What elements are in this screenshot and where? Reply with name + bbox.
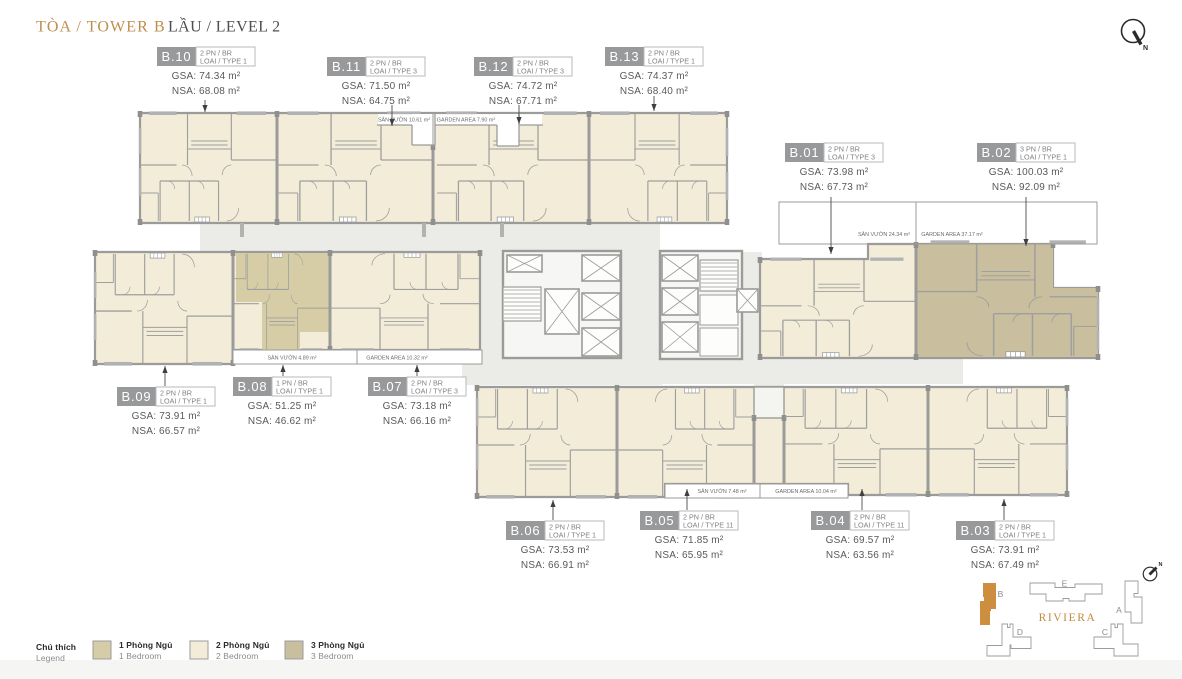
svg-text:LOAI / TYPE 1: LOAI / TYPE 1 bbox=[200, 57, 247, 66]
svg-text:LOAI / TYPE 1: LOAI / TYPE 1 bbox=[648, 57, 695, 66]
svg-text:NSA: 67.71 m²: NSA: 67.71 m² bbox=[489, 96, 558, 107]
svg-text:1 Phòng Ngủ: 1 Phòng Ngủ bbox=[119, 640, 173, 650]
svg-text:SÂN VƯỜN 10.61 m²: SÂN VƯỜN 10.61 m² bbox=[378, 117, 430, 124]
svg-text:NSA: 68.40 m²: NSA: 68.40 m² bbox=[620, 86, 689, 97]
svg-text:GSA: 51.25 m²: GSA: 51.25 m² bbox=[248, 401, 317, 412]
svg-text:GARDEN AREA 7.90 m²: GARDEN AREA 7.90 m² bbox=[437, 118, 496, 124]
svg-text:GSA: 71.85 m²: GSA: 71.85 m² bbox=[655, 535, 724, 546]
svg-text:LOAI / TYPE 1: LOAI / TYPE 1 bbox=[999, 531, 1046, 540]
svg-text:B.02: B.02 bbox=[982, 145, 1012, 160]
svg-text:NSA: 63.56 m²: NSA: 63.56 m² bbox=[826, 550, 895, 561]
svg-text:GARDEN AREA 37.17 m²: GARDEN AREA 37.17 m² bbox=[921, 232, 983, 238]
svg-text:NSA: 64.75 m²: NSA: 64.75 m² bbox=[342, 96, 411, 107]
svg-text:B.11: B.11 bbox=[332, 59, 361, 74]
svg-text:TÒA / TOWER B: TÒA / TOWER B bbox=[36, 17, 166, 36]
svg-text:LOAI / TYPE 1: LOAI / TYPE 1 bbox=[1020, 153, 1067, 162]
svg-text:NSA: 65.95 m²: NSA: 65.95 m² bbox=[655, 550, 724, 561]
svg-text:N: N bbox=[1159, 562, 1163, 568]
svg-text:Legend: Legend bbox=[36, 653, 65, 663]
svg-text:B.07: B.07 bbox=[373, 379, 403, 394]
svg-text:LOAI / TYPE 3: LOAI / TYPE 3 bbox=[828, 153, 875, 162]
svg-text:NSA: 92.09 m²: NSA: 92.09 m² bbox=[992, 182, 1061, 193]
svg-text:GSA: 73.53 m²: GSA: 73.53 m² bbox=[521, 545, 590, 556]
svg-text:3 Phòng Ngủ: 3 Phòng Ngủ bbox=[311, 640, 365, 650]
svg-text:N: N bbox=[1143, 45, 1148, 52]
svg-text:2 Bedroom: 2 Bedroom bbox=[216, 651, 258, 661]
svg-text:A: A bbox=[1116, 605, 1122, 615]
svg-text:LOAI / TYPE 3: LOAI / TYPE 3 bbox=[517, 67, 564, 76]
svg-text:1 Bedroom: 1 Bedroom bbox=[119, 651, 161, 661]
svg-text:NSA: 66.91 m²: NSA: 66.91 m² bbox=[521, 560, 590, 571]
svg-text:GSA: 73.18 m²: GSA: 73.18 m² bbox=[383, 401, 452, 412]
svg-text:GSA: 74.34 m²: GSA: 74.34 m² bbox=[172, 71, 241, 82]
svg-text:NSA: 46.62 m²: NSA: 46.62 m² bbox=[248, 416, 317, 427]
svg-text:LOAI / TYPE 3: LOAI / TYPE 3 bbox=[370, 67, 417, 76]
svg-text:LOAI / TYPE 1: LOAI / TYPE 1 bbox=[549, 531, 596, 540]
svg-text:RIVIERA: RIVIERA bbox=[1039, 612, 1097, 624]
svg-text:E: E bbox=[1062, 579, 1068, 589]
svg-text:GSA: 100.03 m²: GSA: 100.03 m² bbox=[989, 167, 1064, 178]
svg-text:LOAI / TYPE 3: LOAI / TYPE 3 bbox=[411, 387, 458, 396]
svg-text:LOAI / TYPE 11: LOAI / TYPE 11 bbox=[854, 521, 904, 530]
svg-text:B.13: B.13 bbox=[610, 49, 640, 64]
svg-text:D: D bbox=[1017, 627, 1023, 637]
svg-text:GSA: 71.50 m²: GSA: 71.50 m² bbox=[342, 81, 411, 92]
svg-text:Chú thích: Chú thích bbox=[36, 642, 76, 652]
svg-text:3 Bedroom: 3 Bedroom bbox=[311, 651, 353, 661]
svg-text:SÂN VƯỜN 7.48 m²: SÂN VƯỜN 7.48 m² bbox=[697, 488, 746, 495]
svg-text:GARDEN AREA 10.04 m²: GARDEN AREA 10.04 m² bbox=[775, 489, 837, 495]
svg-text:B.05: B.05 bbox=[645, 513, 675, 528]
svg-text:LOAI / TYPE 1: LOAI / TYPE 1 bbox=[276, 387, 323, 396]
svg-text:GSA: 73.98 m²: GSA: 73.98 m² bbox=[800, 167, 869, 178]
svg-text:NSA: 67.49 m²: NSA: 67.49 m² bbox=[971, 560, 1040, 571]
svg-text:B.10: B.10 bbox=[162, 49, 192, 64]
svg-text:LẦU / LEVEL 2: LẦU / LEVEL 2 bbox=[168, 17, 281, 36]
svg-text:LOAI / TYPE 1: LOAI / TYPE 1 bbox=[160, 397, 207, 406]
svg-text:B.03: B.03 bbox=[961, 523, 991, 538]
svg-text:GSA: 74.37 m²: GSA: 74.37 m² bbox=[620, 71, 689, 82]
svg-text:NSA: 66.57 m²: NSA: 66.57 m² bbox=[132, 426, 201, 437]
svg-text:GARDEN AREA 10.32 m²: GARDEN AREA 10.32 m² bbox=[366, 356, 428, 362]
svg-text:LOAI / TYPE 11: LOAI / TYPE 11 bbox=[683, 521, 733, 530]
svg-text:2 Phòng Ngủ: 2 Phòng Ngủ bbox=[216, 640, 270, 650]
svg-text:GSA: 73.91 m²: GSA: 73.91 m² bbox=[971, 545, 1040, 556]
svg-text:SÂN VƯỜN 4.89 m²: SÂN VƯỜN 4.89 m² bbox=[267, 355, 316, 362]
svg-text:B.08: B.08 bbox=[238, 379, 268, 394]
svg-text:NSA: 66.16 m²: NSA: 66.16 m² bbox=[383, 416, 452, 427]
svg-text:C: C bbox=[1102, 627, 1108, 637]
svg-text:GSA: 69.57 m²: GSA: 69.57 m² bbox=[826, 535, 895, 546]
svg-text:NSA: 68.08 m²: NSA: 68.08 m² bbox=[172, 86, 241, 97]
svg-text:GSA: 74.72 m²: GSA: 74.72 m² bbox=[489, 81, 558, 92]
svg-text:B.06: B.06 bbox=[511, 523, 541, 538]
svg-text:SÂN VƯỜN 24.34 m²: SÂN VƯỜN 24.34 m² bbox=[858, 231, 910, 238]
svg-text:B.04: B.04 bbox=[816, 513, 846, 528]
svg-text:B.09: B.09 bbox=[122, 389, 152, 404]
svg-text:NSA: 67.73 m²: NSA: 67.73 m² bbox=[800, 182, 869, 193]
svg-text:B.01: B.01 bbox=[790, 145, 820, 160]
svg-text:B.12: B.12 bbox=[479, 59, 509, 74]
svg-text:GSA: 73.91 m²: GSA: 73.91 m² bbox=[132, 411, 201, 422]
svg-text:B: B bbox=[998, 589, 1004, 599]
